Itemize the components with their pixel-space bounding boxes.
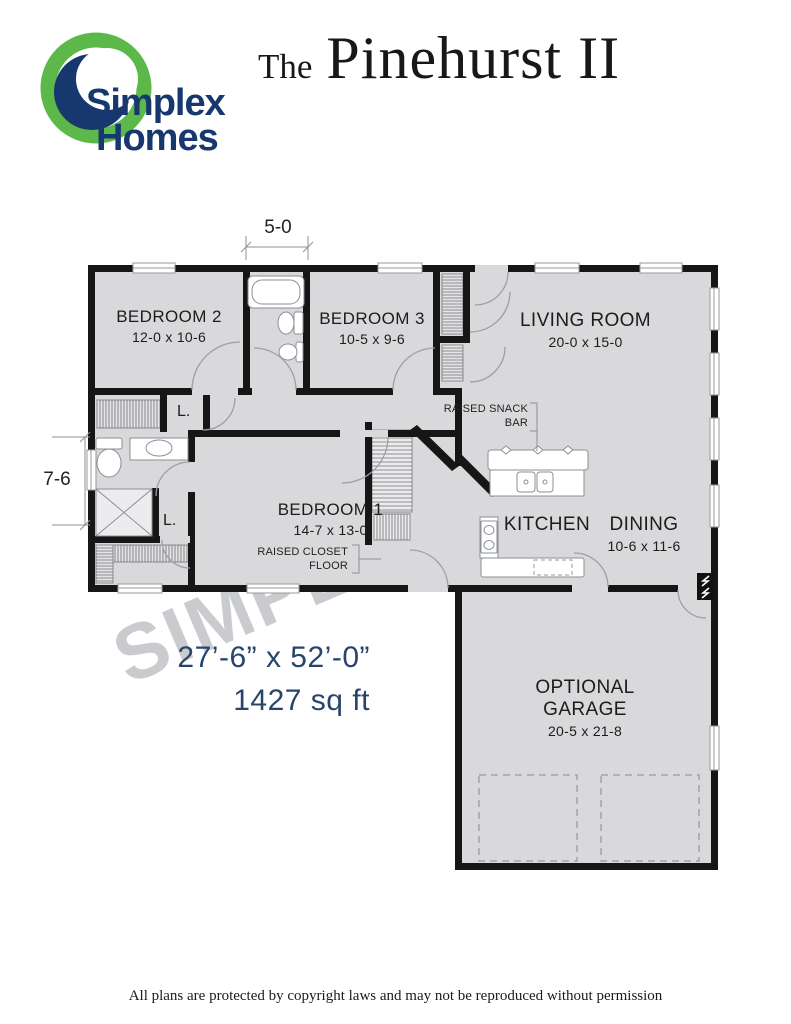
dimension-5-0-lines — [241, 236, 313, 260]
bathtub — [248, 276, 304, 308]
page: Simplex Homes The Pinehurst II SIMPLEX — [0, 0, 791, 1024]
room-label-dining: DINING 10-6 x 11-6 — [585, 514, 703, 554]
overall-dimensions: 27’-6” x 52’-0” 1427 sq ft — [130, 637, 370, 722]
garage-name-line1: OPTIONAL — [495, 677, 675, 699]
bedroom-2-dims: 12-0 x 10-6 — [88, 329, 250, 345]
bedroom-3-dims: 10-5 x 9-6 — [298, 331, 446, 347]
room-label-bedroom-1: BEDROOM 1 14-7 x 13-0 — [238, 500, 423, 538]
garage-name-line2: GARAGE — [495, 699, 675, 721]
bedroom-1-dims: 14-7 x 13-0 — [238, 522, 423, 538]
overall-area: 1427 sq ft — [130, 680, 370, 723]
room-label-bedroom-3: BEDROOM 3 10-5 x 9-6 — [298, 309, 446, 347]
copyright-notice: All plans are protected by copyright law… — [0, 988, 791, 1005]
room-label-bedroom-2: BEDROOM 2 12-0 x 10-6 — [88, 307, 250, 345]
vanity-master-bath — [130, 438, 188, 460]
overall-footprint: 27’-6” x 52’-0” — [130, 637, 370, 680]
living-room-name: LIVING ROOM — [488, 310, 683, 332]
room-label-garage: OPTIONAL GARAGE 20-5 x 21-8 — [495, 677, 675, 739]
bedroom-2-name: BEDROOM 2 — [88, 307, 250, 327]
garage-dims: 20-5 x 21-8 — [495, 723, 675, 739]
living-room-dims: 20-0 x 15-0 — [488, 334, 683, 350]
room-label-living-room: LIVING ROOM 20-0 x 15-0 — [488, 310, 683, 350]
note-raised-snack-bar: RAISED SNACK BAR — [430, 402, 528, 431]
note-raised-closet-floor: RAISED CLOSET FLOOR — [250, 545, 348, 574]
bedroom-3-name: BEDROOM 3 — [298, 309, 446, 329]
linen-closet-label-master: L. — [163, 512, 176, 530]
electrical-panel-icon — [697, 573, 714, 600]
toilet-master-bath — [96, 438, 122, 477]
kitchen-sink — [517, 472, 553, 492]
linen-closet-label-hall: L. — [177, 403, 190, 421]
dining-dims: 10-6 x 11-6 — [585, 538, 703, 554]
snack-note-line1: RAISED SNACK — [444, 403, 528, 415]
shower — [96, 489, 152, 536]
dimension-5-0: 5-0 — [247, 217, 309, 239]
dining-name: DINING — [585, 514, 703, 536]
snack-note-line2: BAR — [505, 417, 528, 429]
dimension-7-6: 7-6 — [36, 469, 78, 491]
closet-note-line1: RAISED CLOSET — [257, 546, 348, 558]
bedroom-1-name: BEDROOM 1 — [238, 500, 423, 520]
closet-note-line2: FLOOR — [309, 560, 348, 572]
